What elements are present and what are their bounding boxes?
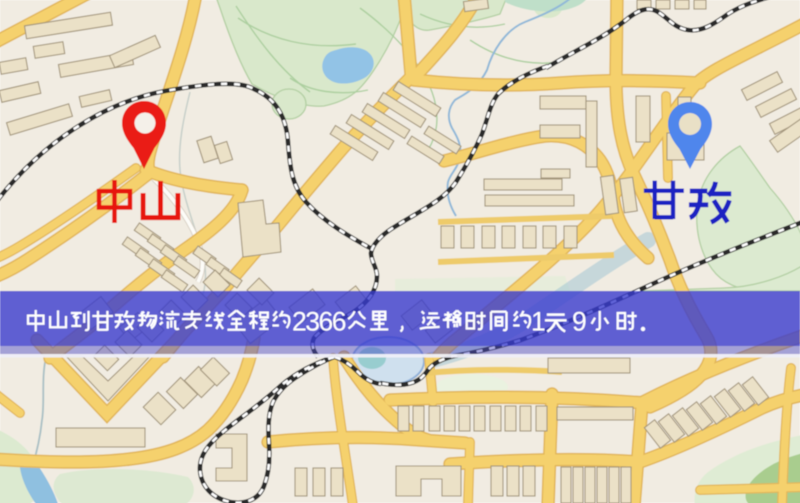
svg-text:9: 9: [572, 307, 586, 337]
svg-text:2366: 2366: [292, 307, 346, 337]
svg-text:1: 1: [531, 307, 545, 337]
